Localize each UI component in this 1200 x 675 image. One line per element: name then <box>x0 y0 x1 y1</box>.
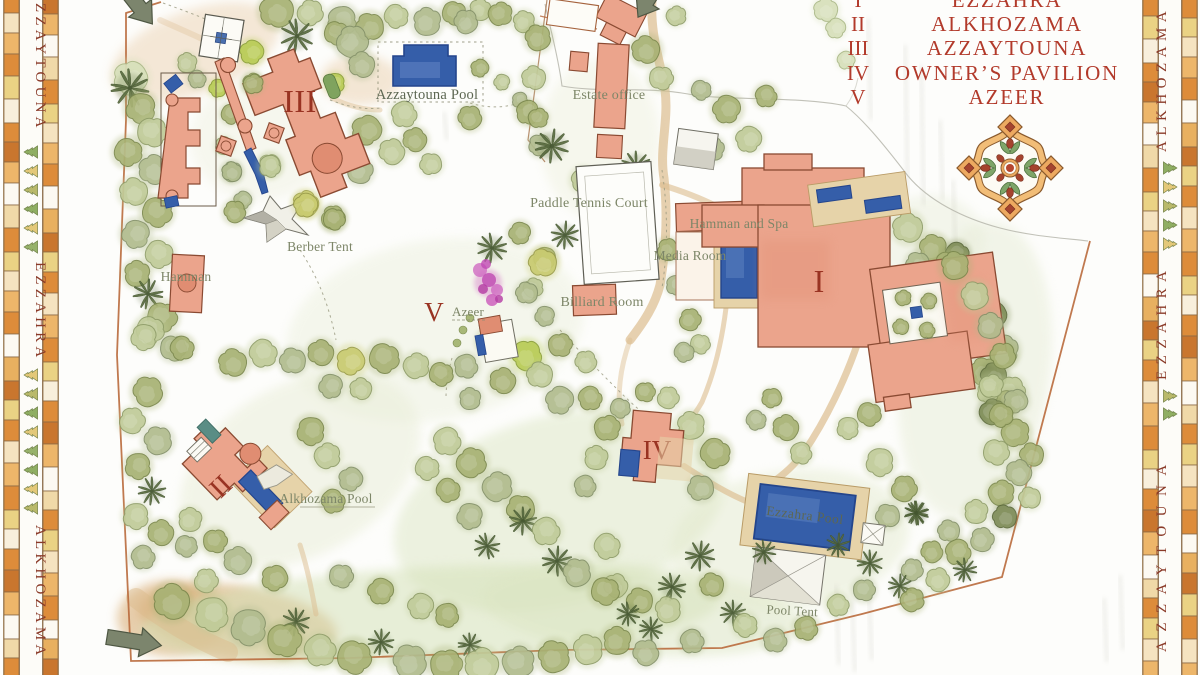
svg-text:I: I <box>814 263 825 299</box>
svg-text:III: III <box>283 83 316 119</box>
svg-text:ALKHOZAMA: ALKHOZAMA <box>32 525 48 659</box>
svg-text:Media Room: Media Room <box>654 248 727 263</box>
svg-text:AZZAYTOUNA: AZZAYTOUNA <box>1154 455 1170 652</box>
svg-text:V: V <box>424 297 444 327</box>
svg-text:Azzaytouna Pool: Azzaytouna Pool <box>376 87 478 103</box>
svg-text:IV: IV <box>847 61 869 85</box>
svg-text:EZZAHRA: EZZAHRA <box>32 262 48 361</box>
svg-text:I: I <box>855 0 862 12</box>
svg-text:Alkhozama Pool: Alkhozama Pool <box>279 491 372 506</box>
svg-text:Estate office: Estate office <box>573 88 646 103</box>
svg-text:ALKHOZAMA: ALKHOZAMA <box>931 12 1083 36</box>
svg-text:EZZAHRA: EZZAHRA <box>1154 265 1170 381</box>
svg-text:Hamman: Hamman <box>161 269 212 284</box>
svg-text:AZEER: AZEER <box>969 85 1046 109</box>
svg-text:III: III <box>848 36 869 60</box>
svg-text:EZZAHRA: EZZAHRA <box>952 0 1063 12</box>
svg-text:Paddle Tennis Court: Paddle Tennis Court <box>530 196 648 211</box>
svg-text:Azeer: Azeer <box>452 304 484 319</box>
svg-text:II: II <box>851 12 865 36</box>
svg-text:ALKHOZAMA: ALKHOZAMA <box>1154 6 1170 152</box>
svg-text:Hamman and Spa: Hamman and Spa <box>690 216 789 231</box>
svg-text:Berber Tent: Berber Tent <box>287 239 353 254</box>
svg-text:AZZAYTOUNA: AZZAYTOUNA <box>32 0 48 132</box>
svg-text:V: V <box>850 85 865 109</box>
svg-text:OWNER’S PAVILION: OWNER’S PAVILION <box>895 61 1119 85</box>
svg-text:AZZAYTOUNA: AZZAYTOUNA <box>927 36 1087 60</box>
svg-text:Billiard Room: Billiard Room <box>560 295 643 310</box>
svg-text:Pool Tent: Pool Tent <box>766 602 818 620</box>
